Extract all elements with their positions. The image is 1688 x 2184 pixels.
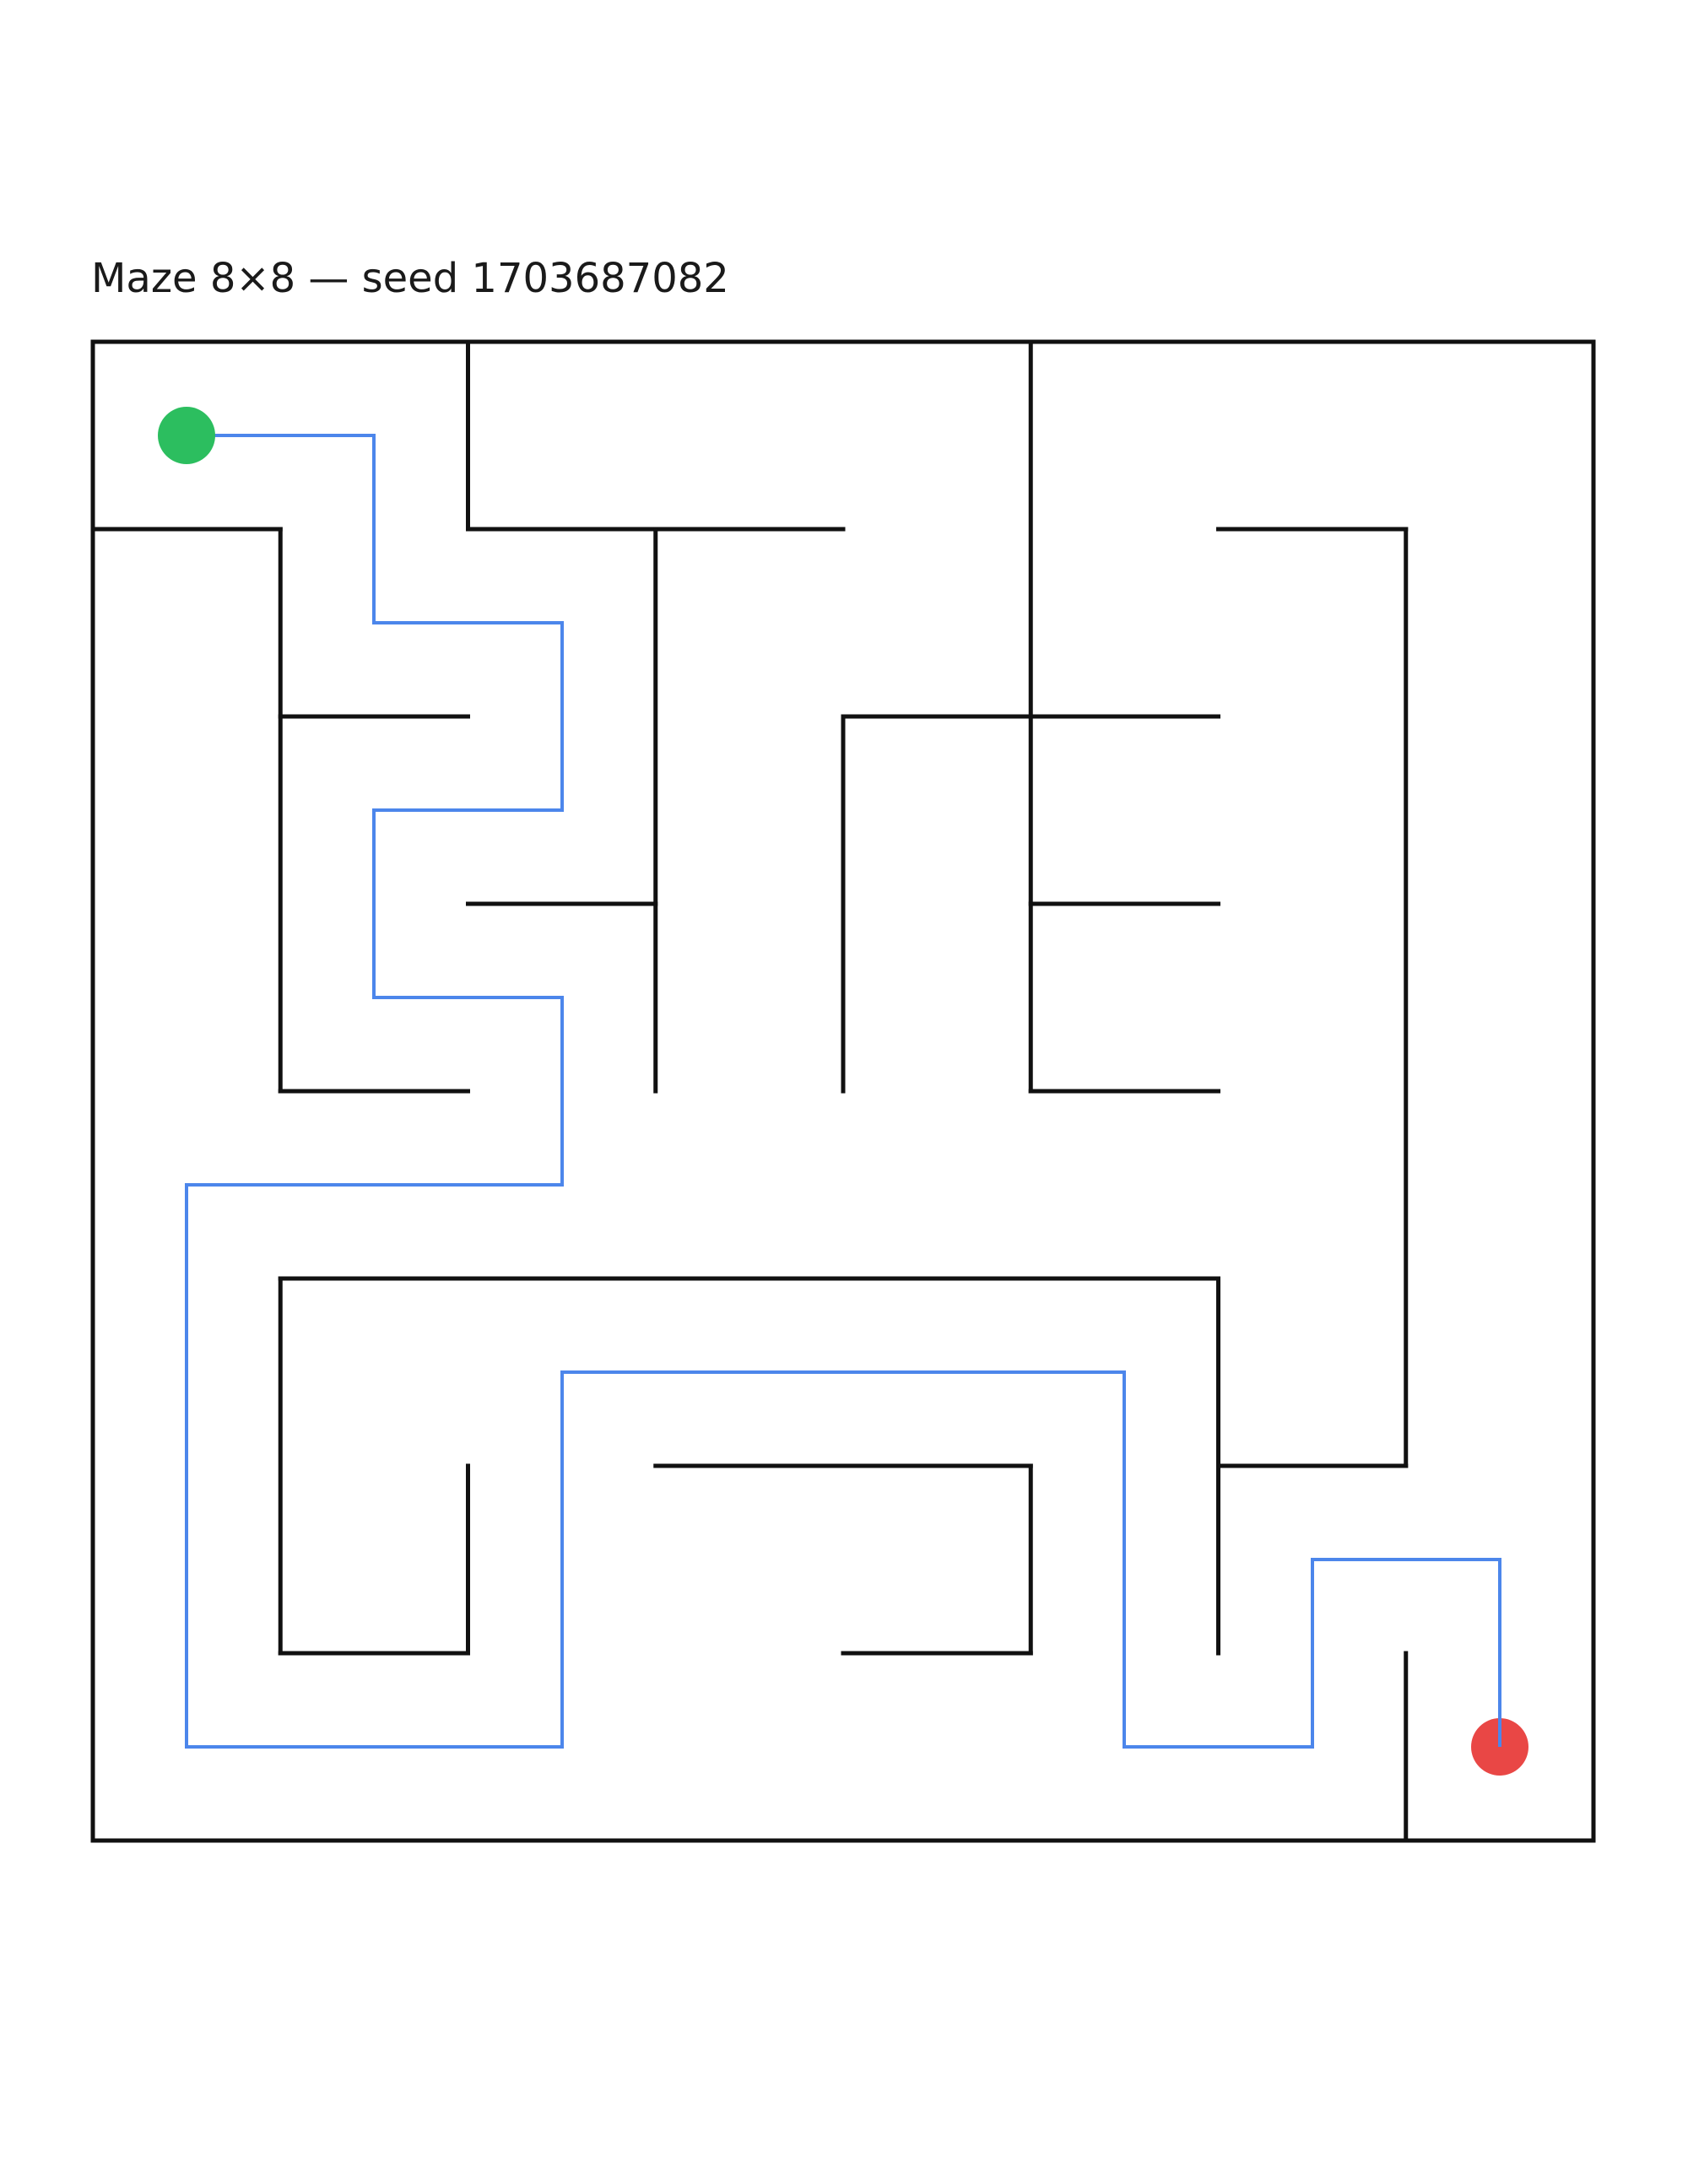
maze-canvas [0,0,1688,2184]
maze-page: Maze 8×8 — seed 1703687082 [0,0,1688,2184]
start-marker [158,407,215,464]
